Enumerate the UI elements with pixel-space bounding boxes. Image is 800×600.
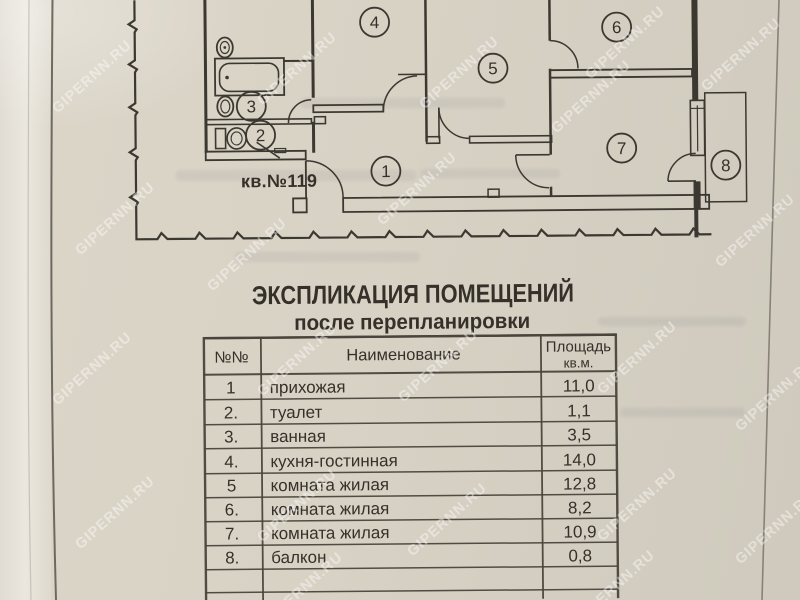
cell-num: 2. <box>224 403 238 422</box>
cell-num: 7. <box>225 524 239 543</box>
room-number-1: 1 <box>381 162 391 181</box>
room-circle-4: 4 <box>360 8 389 37</box>
cell-num: 1 <box>226 378 236 397</box>
header-area-line1: Площадь <box>546 338 612 356</box>
scanned-floor-plan-page: 1 2 3 4 5 <box>0 0 800 600</box>
apartment-label: кв.№119 <box>241 171 317 192</box>
cell-area: 8,2 <box>568 498 592 517</box>
room-number-8: 8 <box>721 156 731 175</box>
room-number-4: 4 <box>370 13 380 32</box>
watermark-text: GIPERNN.RU <box>698 15 784 95</box>
balcony-outline <box>705 92 747 201</box>
watermark-text: GIPERNN.RU <box>49 329 135 409</box>
room-circle-8: 8 <box>711 151 740 180</box>
cell-area: 1,1 <box>567 401 591 420</box>
room-number-3: 3 <box>246 97 256 116</box>
cell-area: 0,8 <box>568 546 592 565</box>
cell-name: комната жилая <box>271 523 390 543</box>
cell-area: 11,0 <box>563 376 595 395</box>
room-number-2: 2 <box>256 126 266 145</box>
page-svg: 1 2 3 4 5 <box>0 0 800 600</box>
header-area-line2: кв.м. <box>564 355 594 370</box>
cell-num: 3. <box>224 427 238 446</box>
table-row: 4. кухня-гостинная 14,0 <box>224 449 596 472</box>
header-num: №№ <box>214 349 248 366</box>
watermark-text: GIPERNN.RU <box>72 179 158 259</box>
sink <box>217 96 233 116</box>
cell-area: 10,9 <box>563 522 596 541</box>
table-borders <box>203 335 618 600</box>
toilet <box>215 128 246 149</box>
watermark-text: GIPERNN.RU <box>254 29 340 109</box>
cell-name: ванная <box>270 427 326 446</box>
cell-area: 14,0 <box>563 450 596 469</box>
table-row: 5 комната жилая 12,8 <box>227 473 596 496</box>
room-number-7: 7 <box>617 139 627 158</box>
cell-area: 12,8 <box>563 474 596 493</box>
watermark-text: GIPERNN.RU <box>49 37 135 117</box>
table-row: 3. ванная 3,5 <box>224 424 591 447</box>
watermark-text: GIPERNN.RU <box>732 488 800 568</box>
room-number-5: 5 <box>488 59 498 78</box>
room-circle-7: 7 <box>607 133 636 162</box>
cell-name: туалет <box>270 403 323 422</box>
cell-num: 6. <box>225 500 239 519</box>
table-header: №№ Наименование Площадь кв.м. <box>214 338 611 373</box>
cell-num: 8. <box>225 548 239 567</box>
watermark-text: GIPERNN.RU <box>594 465 680 545</box>
floor-plan: 1 2 3 4 5 <box>128 0 747 242</box>
watermark-text: GIPERNN.RU <box>72 473 158 553</box>
watermark-text: GIPERNN.RU <box>594 318 680 398</box>
washbasin <box>217 37 233 57</box>
cell-name: кухня-гостинная <box>270 451 398 471</box>
explication-table: №№ Наименование Площадь кв.м. 1 прихожая… <box>203 335 618 600</box>
room-number-6: 6 <box>612 18 622 37</box>
cell-area: 3,5 <box>567 425 591 444</box>
watermark-text: GIPERNN.RU <box>712 191 798 271</box>
cell-num: 5 <box>227 476 237 495</box>
explication-title: ЭКСПЛИКАЦИЯ ПОМЕЩЕНИЙ <box>252 277 574 310</box>
watermark-text: GIPERNN.RU <box>395 326 481 406</box>
cell-num: 4. <box>224 452 238 471</box>
